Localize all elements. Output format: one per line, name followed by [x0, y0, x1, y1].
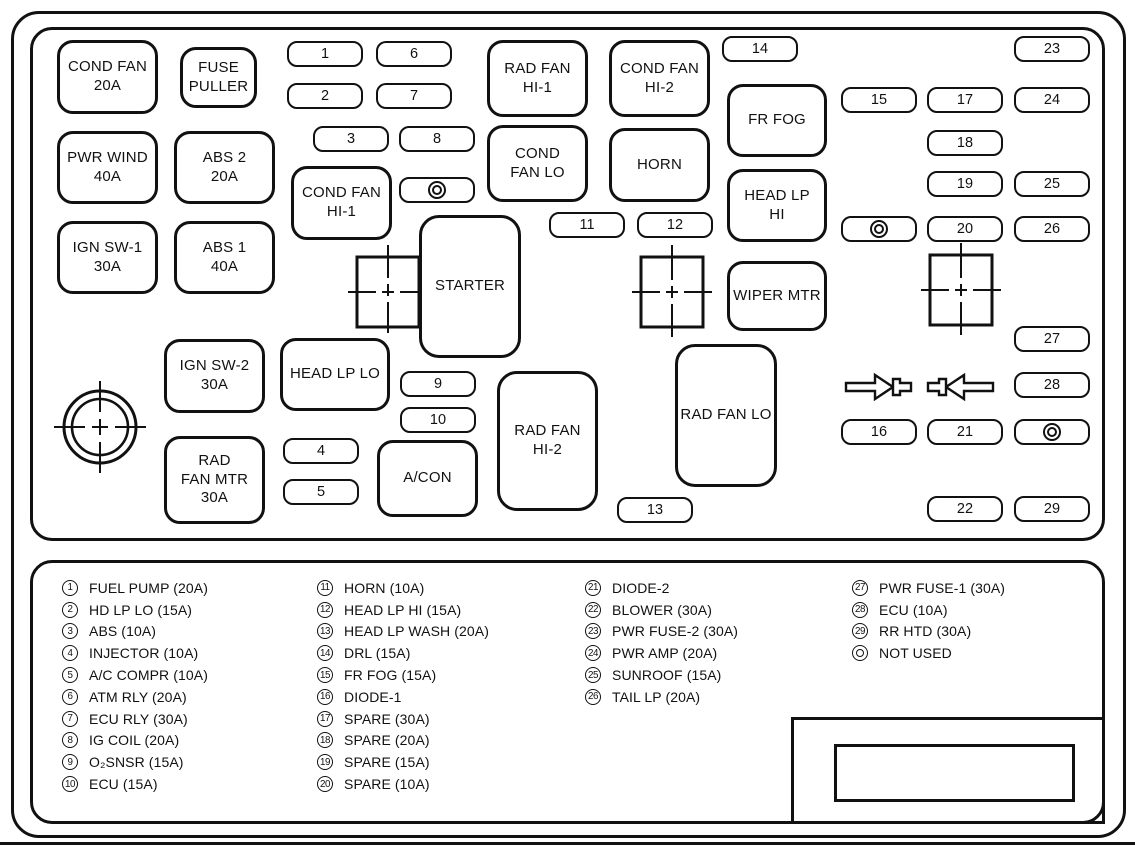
legend-item-label: PWR AMP (20A)	[612, 645, 717, 661]
legend-column-3: 21DIODE-222BLOWER (30A)23PWR FUSE-2 (30A…	[585, 577, 738, 708]
legend-item-14: 14DRL (15A)	[317, 642, 489, 664]
legend-item-label: SUNROOF (15A)	[612, 667, 721, 683]
circled-number: 25	[585, 667, 601, 683]
circled-number: 13	[317, 623, 333, 639]
legend-item-23: 23PWR FUSE-2 (30A)	[585, 621, 738, 643]
legend-item-label: SPARE (30A)	[344, 711, 430, 727]
legend-item-label: SPARE (10A)	[344, 776, 430, 792]
legend-item-label: DRL (15A)	[344, 645, 411, 661]
circled-number: 18	[317, 732, 333, 748]
legend-item-13: 13HEAD LP WASH (20A)	[317, 621, 489, 643]
legend-item-label: SPARE (20A)	[344, 732, 430, 748]
circled-number: 11	[317, 580, 333, 596]
legend-item-label: FR FOG (15A)	[344, 667, 436, 683]
legend-item-12: 12HEAD LP HI (15A)	[317, 599, 489, 621]
legend-item-label: PWR FUSE-2 (30A)	[612, 623, 738, 639]
legend-item-label: HEAD LP HI (15A)	[344, 602, 461, 618]
circled-number: 24	[585, 645, 601, 661]
legend-item-label: TAIL LP (20A)	[612, 689, 700, 705]
circled-number: 27	[852, 580, 868, 596]
legend-item-27: 27PWR FUSE-1 (30A)	[852, 577, 1005, 599]
circled-number: 15	[317, 667, 333, 683]
legend-item-29: 29RR HTD (30A)	[852, 621, 1005, 643]
legend-column-4: 27PWR FUSE-1 (30A)28ECU (10A)29RR HTD (3…	[852, 577, 1005, 664]
legend-item-label: PWR FUSE-1 (30A)	[879, 580, 1005, 596]
circled-number: 7	[62, 711, 78, 727]
circled-number: 20	[317, 776, 333, 792]
legend-item-label: ABS (10A)	[89, 623, 156, 639]
legend-item-label: DIODE-1	[344, 689, 402, 705]
legend-item-16: 16DIODE-1	[317, 686, 489, 708]
legend-item-9: 9O₂SNSR (15A)	[62, 751, 208, 773]
legend-item-20: 20SPARE (10A)	[317, 773, 489, 795]
circled-number: 17	[317, 711, 333, 727]
circled-number: 12	[317, 602, 333, 618]
legend-item-24: 24PWR AMP (20A)	[585, 642, 738, 664]
legend-item-26: 26TAIL LP (20A)	[585, 686, 738, 708]
circled-number: 23	[585, 623, 601, 639]
circled-number: 19	[317, 754, 333, 770]
legend-column-1: 1FUEL PUMP (20A)2HD LP LO (15A)3ABS (10A…	[62, 577, 208, 795]
legend-item-21: 21DIODE-2	[585, 577, 738, 599]
legend-item-label: O₂SNSR (15A)	[89, 754, 184, 770]
legend-item-5: 5A/C COMPR (10A)	[62, 664, 208, 686]
legend-item-2: 2HD LP LO (15A)	[62, 599, 208, 621]
circled-number: 21	[585, 580, 601, 596]
circled-number: 6	[62, 689, 78, 705]
legend-item-17: 17SPARE (30A)	[317, 708, 489, 730]
legend-item-label: HEAD LP WASH (20A)	[344, 623, 489, 639]
legend-item-label: ECU (10A)	[879, 602, 948, 618]
circled-number: 5	[62, 667, 78, 683]
circled-number: 26	[585, 689, 601, 705]
legend-item-label: HORN (10A)	[344, 580, 424, 596]
legend-item-15: 15FR FOG (15A)	[317, 664, 489, 686]
legend-item-7: 7ECU RLY (30A)	[62, 708, 208, 730]
legend-item-11: 11HORN (10A)	[317, 577, 489, 599]
legend-item-19: 19SPARE (15A)	[317, 751, 489, 773]
legend-item-label: NOT USED	[879, 645, 952, 661]
not-used-icon	[852, 645, 868, 661]
circled-number: 14	[317, 645, 333, 661]
legend-item-6: 6ATM RLY (20A)	[62, 686, 208, 708]
legend-item-label: INJECTOR (10A)	[89, 645, 198, 661]
circled-number: 1	[62, 580, 78, 596]
circled-number: 8	[62, 732, 78, 748]
legend-item-4: 4INJECTOR (10A)	[62, 642, 208, 664]
circled-number: 28	[852, 602, 868, 618]
circled-number: 4	[62, 645, 78, 661]
legend-item-label: SPARE (15A)	[344, 754, 430, 770]
legend-item-1: 1FUEL PUMP (20A)	[62, 577, 208, 599]
legend-item-not-used: NOT USED	[852, 642, 1005, 664]
legend-item-label: ECU RLY (30A)	[89, 711, 188, 727]
circled-number: 10	[62, 776, 78, 792]
legend-item-label: RR HTD (30A)	[879, 623, 971, 639]
legend-item-22: 22BLOWER (30A)	[585, 599, 738, 621]
legend-item-8: 8IG COIL (20A)	[62, 730, 208, 752]
circled-number: 2	[62, 602, 78, 618]
legend-item-label: ECU (15A)	[89, 776, 158, 792]
legend-item-label: IG COIL (20A)	[89, 732, 179, 748]
fuse-box-diagram-page: COND FAN 20AFUSE PULLERRAD FAN HI-1COND …	[0, 0, 1135, 847]
legend-item-label: BLOWER (30A)	[612, 602, 712, 618]
legend-item-label: DIODE-2	[612, 580, 670, 596]
legend-column-2: 11HORN (10A)12HEAD LP HI (15A)13HEAD LP …	[317, 577, 489, 795]
circled-number: 9	[62, 754, 78, 770]
legend-item-3: 3ABS (10A)	[62, 621, 208, 643]
legend-item-label: ATM RLY (20A)	[89, 689, 187, 705]
circled-number: 16	[317, 689, 333, 705]
legend-item-label: FUEL PUMP (20A)	[89, 580, 208, 596]
circled-number: 29	[852, 623, 868, 639]
legend-item-label: A/C COMPR (10A)	[89, 667, 208, 683]
legend-item-28: 28ECU (10A)	[852, 599, 1005, 621]
circled-number: 3	[62, 623, 78, 639]
legend-layer: 1FUEL PUMP (20A)2HD LP LO (15A)3ABS (10A…	[0, 0, 1135, 847]
legend-item-10: 10ECU (15A)	[62, 773, 208, 795]
legend-item-18: 18SPARE (20A)	[317, 730, 489, 752]
legend-item-label: HD LP LO (15A)	[89, 602, 192, 618]
circled-number: 22	[585, 602, 601, 618]
legend-item-25: 25SUNROOF (15A)	[585, 664, 738, 686]
